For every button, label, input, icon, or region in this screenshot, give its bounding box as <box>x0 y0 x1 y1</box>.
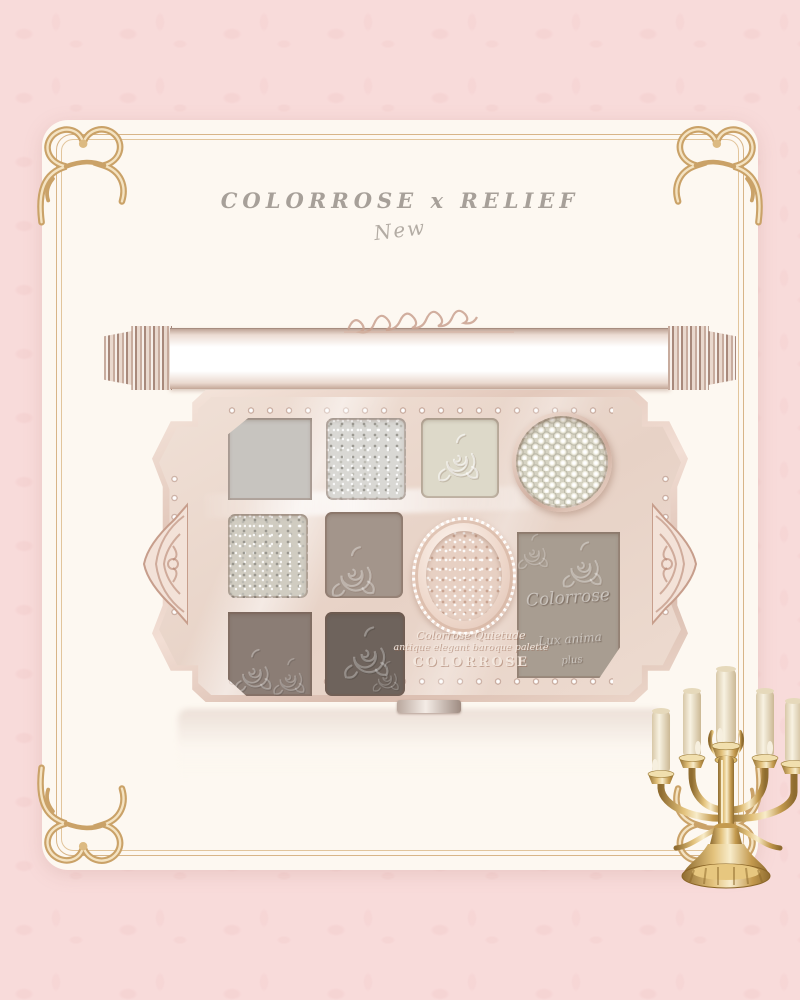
rose-emboss-icon <box>319 538 385 604</box>
palette-latch <box>397 700 461 713</box>
lid-scroll-crest-icon <box>344 308 514 334</box>
frame-corner-flourish-icon <box>34 122 138 226</box>
rose-emboss-icon <box>426 426 488 488</box>
eyeshadow-pan-matte-light-gray <box>228 418 312 500</box>
poster-background: COLORROSE x RELIEF New <box>0 0 800 1000</box>
frame-corner-flourish-icon <box>34 764 138 868</box>
rose-emboss-icon <box>264 652 312 700</box>
cameo-sparkle-center <box>426 531 502 621</box>
lid-edge-left <box>104 326 172 390</box>
frame-corner-flourish-icon <box>662 122 766 226</box>
candelabra-icon <box>628 648 800 898</box>
filigree-wing-icon <box>652 500 700 628</box>
table-reflection <box>178 709 664 781</box>
eyeshadow-pan-ivory-rose <box>421 418 499 498</box>
eyeshadow-pan-champagne-glitter <box>228 514 308 598</box>
eyeshadow-pan-taupe-rose <box>325 512 403 598</box>
lid-edge-right <box>668 326 736 390</box>
pearl-topper-pan <box>516 416 608 508</box>
cameo-mirror-ornament <box>412 517 516 635</box>
pearl-pan-ring <box>512 412 612 512</box>
eyeshadow-pan-silver-glitter <box>326 418 406 500</box>
palette-lid-mirror <box>170 328 670 389</box>
filigree-wing-icon <box>140 500 188 628</box>
eyeshadow-pan-mocha-rose <box>228 612 312 696</box>
